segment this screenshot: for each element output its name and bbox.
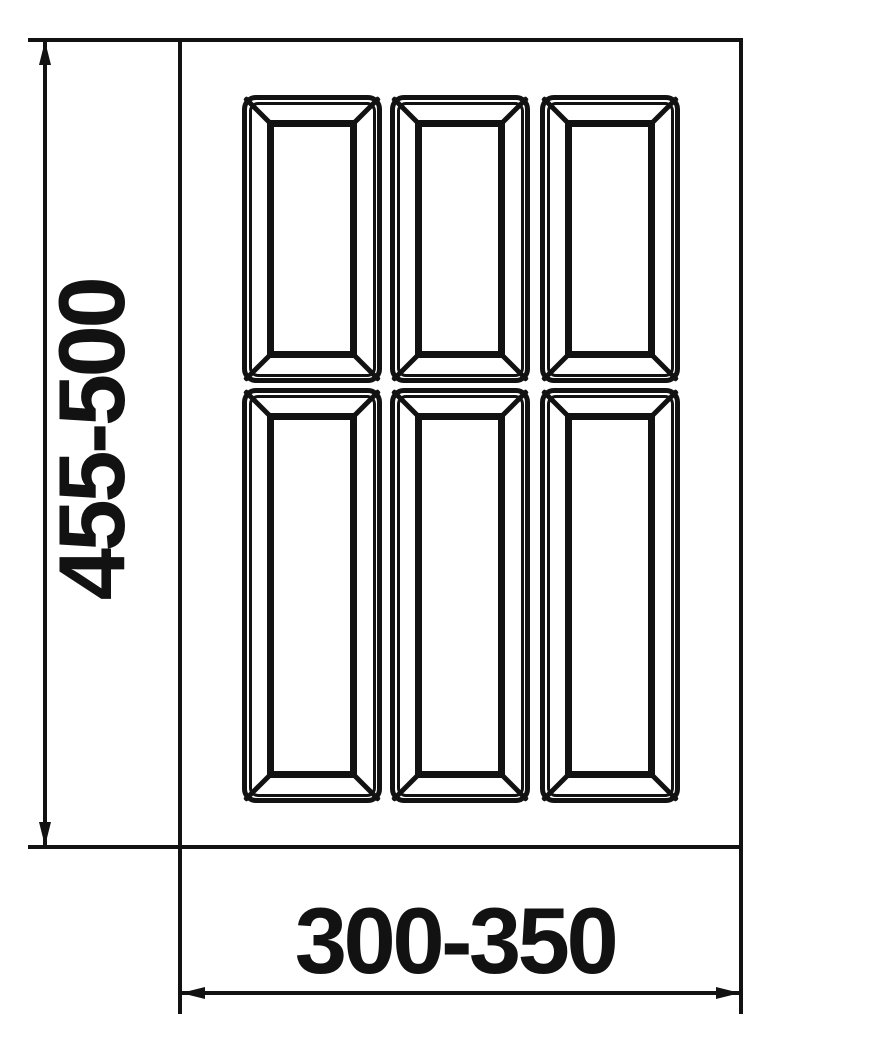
compartment-base-line <box>267 413 357 778</box>
compartment-base-line <box>415 120 505 358</box>
height-dimension-arrow-top-icon <box>39 41 51 65</box>
width-dimension-arrow-right-icon <box>716 987 740 999</box>
compartment-row1-col1 <box>242 95 382 383</box>
tray-left-edge-line <box>178 38 182 1014</box>
compartment-base-line <box>565 413 655 778</box>
compartment-base-line <box>415 413 505 778</box>
width-dimension-label: 300-350 <box>295 894 615 988</box>
compartment-row1-col2 <box>390 95 530 383</box>
tray-right-edge-line <box>739 38 743 1014</box>
compartment-row1-col3 <box>540 95 680 383</box>
compartment-base-line <box>565 120 655 358</box>
technical-drawing-canvas: 455-500 300-350 <box>0 0 882 1048</box>
compartment-row2-col2 <box>390 388 530 803</box>
compartment-base-line <box>267 120 357 358</box>
tray-top-edge-line <box>28 38 742 42</box>
tray-bottom-edge-line <box>28 845 742 849</box>
compartment-row2-col3 <box>540 388 680 803</box>
height-dimension-arrow-bottom-icon <box>39 822 51 846</box>
compartment-row2-col1 <box>242 388 382 803</box>
width-dimension-arrow-left-icon <box>181 987 205 999</box>
height-dimension-label: 455-500 <box>45 280 139 600</box>
